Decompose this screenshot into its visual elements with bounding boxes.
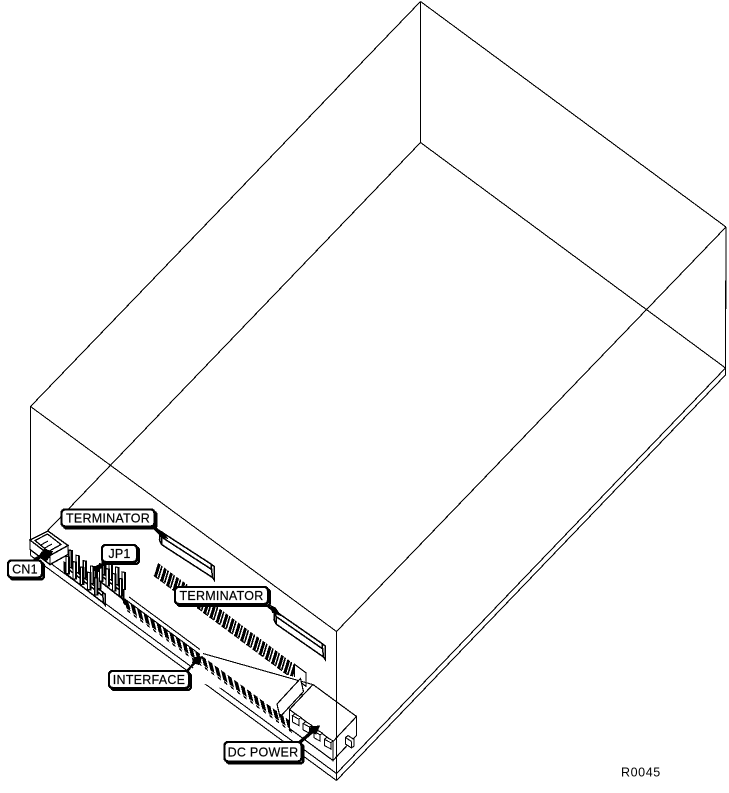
svg-text:TERMINATOR: TERMINATOR	[180, 589, 264, 603]
svg-text:R0045: R0045	[621, 766, 661, 780]
svg-text:JP1: JP1	[108, 547, 130, 561]
svg-text:CN1: CN1	[12, 563, 38, 577]
svg-text:DC POWER: DC POWER	[228, 745, 299, 759]
svg-text:TERMINATOR: TERMINATOR	[66, 512, 150, 526]
svg-text:INTERFACE: INTERFACE	[113, 673, 185, 687]
